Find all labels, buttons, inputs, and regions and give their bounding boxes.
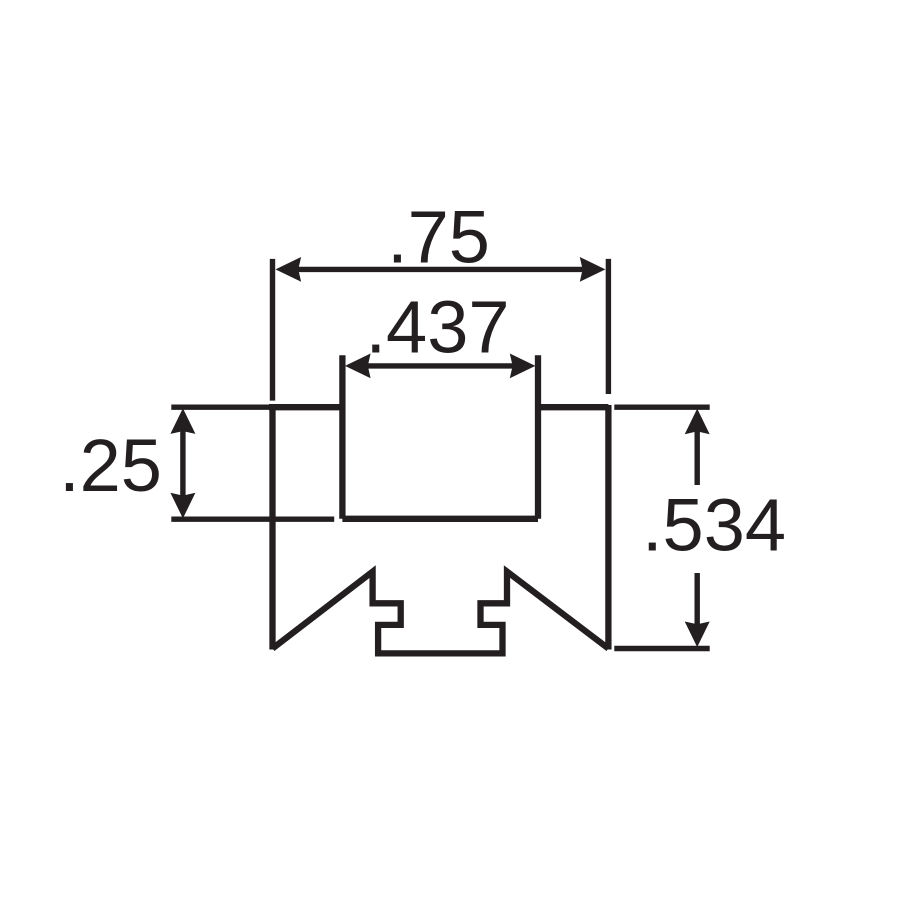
svg-text:.437: .437 [365, 285, 509, 368]
svg-text:.25: .25 [59, 424, 162, 507]
svg-text:.75: .75 [387, 196, 490, 279]
svg-text:.534: .534 [642, 484, 786, 567]
